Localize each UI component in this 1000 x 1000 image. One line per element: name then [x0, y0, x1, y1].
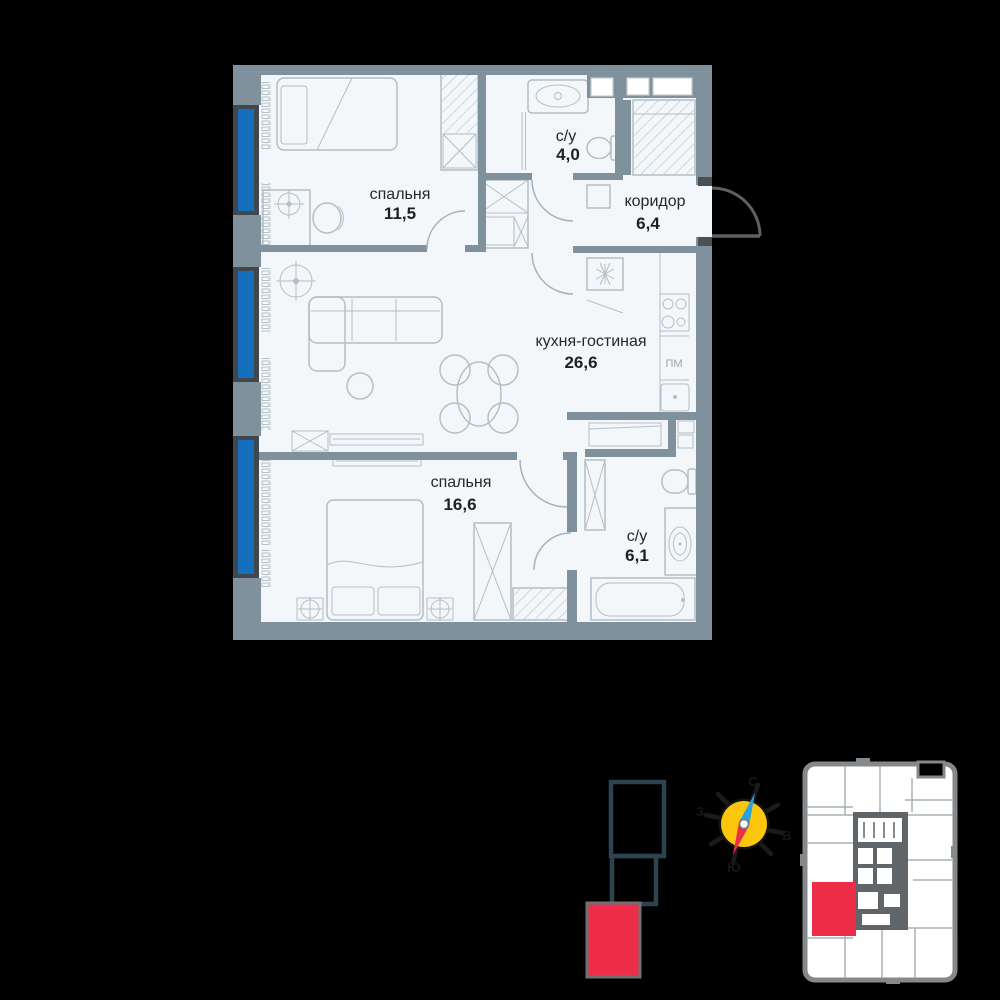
- dishwasher-label: ПМ: [665, 358, 682, 370]
- wall-right: [696, 237, 712, 622]
- silhouette-section-middle: [612, 856, 656, 904]
- room-label-bedroom1: спальня: [370, 186, 431, 203]
- wall-bedroom1-right: [478, 75, 486, 252]
- windows: [233, 105, 259, 578]
- entrance-door-arc: [712, 188, 760, 236]
- pier: [233, 578, 261, 622]
- silhouette-section-highlighted: [587, 903, 640, 977]
- wall-closet-side: [623, 100, 631, 175]
- wall-corridor-bottom: [573, 246, 696, 253]
- wall-bedroom2-top: [259, 452, 517, 460]
- window: [233, 436, 259, 578]
- compass: С Ю З В: [696, 774, 792, 875]
- wall-top: [233, 65, 712, 75]
- entry-cells: [591, 78, 692, 96]
- room-label-bathroom2: с/у: [627, 528, 647, 545]
- pier: [233, 215, 261, 267]
- floor-plate-minimap: [800, 758, 957, 984]
- corridor-wardrobe: [633, 100, 695, 175]
- room-label-kitchen: кухня-гостиная: [535, 333, 646, 350]
- wall-bedroom1-bottom: [259, 245, 427, 252]
- wall-bathroom1-right: [615, 75, 623, 175]
- wall-bathroom2-left: [567, 570, 577, 622]
- minimap-core-door: [908, 878, 913, 892]
- room-area-kitchen: 26,6: [564, 353, 597, 372]
- wall-bottom: [233, 622, 712, 640]
- compass-letter-north: С: [748, 774, 758, 789]
- apartment-plan-image: ПМ: [0, 0, 1000, 1000]
- window: [233, 105, 259, 215]
- room-area-bedroom2: 16,6: [443, 495, 476, 514]
- wall-niche-divider: [668, 420, 676, 457]
- wall-bedroom1-bottom: [465, 245, 478, 252]
- wall-niche-top: [567, 412, 696, 420]
- room-label-bedroom2: спальня: [431, 474, 492, 491]
- silhouette-section-top: [611, 782, 664, 856]
- room-area-bathroom2: 6,1: [625, 546, 649, 565]
- room-label-bathroom1: с/у: [556, 128, 576, 145]
- screenshot-canvas: ПМ: [0, 0, 1000, 1000]
- wall-bathroom1-bottom: [478, 173, 532, 180]
- minimap-notch: [918, 762, 944, 777]
- room-label-corridor: коридор: [624, 193, 685, 210]
- pier: [233, 382, 261, 436]
- floor-plan: ПМ: [233, 65, 760, 640]
- wall-bathroom2-left: [567, 452, 577, 532]
- building-silhouette: [587, 782, 664, 977]
- window: [233, 267, 259, 382]
- room-area-bathroom1: 4,0: [556, 145, 580, 164]
- compass-letter-south: Ю: [727, 860, 740, 875]
- wall-right-top: [696, 75, 712, 185]
- compass-pivot: [740, 820, 749, 829]
- compass-letter-east: В: [782, 828, 791, 843]
- closet-hatched: [513, 588, 575, 620]
- room-area-bedroom1: 11,5: [384, 204, 416, 223]
- pier: [233, 65, 261, 105]
- compass-letter-west: З: [696, 804, 704, 819]
- minimap-highlighted-apartment: [812, 882, 856, 936]
- room-area-corridor: 6,4: [636, 214, 660, 233]
- wall-niche-bottom: [585, 449, 670, 457]
- wall-bathroom1-bottom: [573, 173, 623, 180]
